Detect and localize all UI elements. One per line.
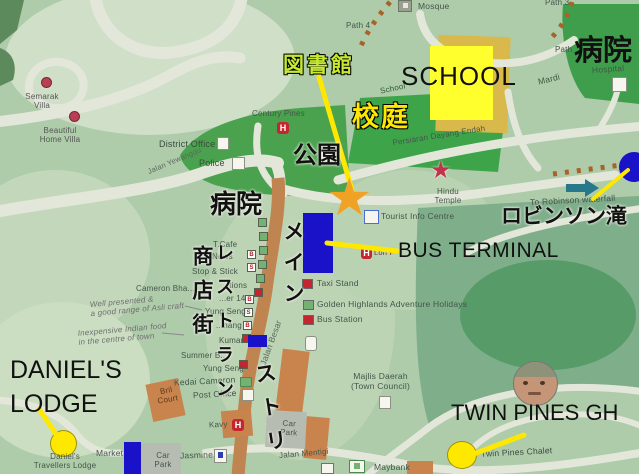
annotation-twin-pines-en: TWIN PINES GH — [451, 400, 618, 426]
annotation-restaurant-jp: レストラン — [211, 243, 237, 413]
annotation-schoolyard-jp: 校庭 — [352, 95, 410, 134]
annotation-school-en: SCHOOL — [401, 61, 517, 92]
annotation-library-jp: 図書館 — [283, 49, 355, 79]
annotation-bus-terminal-en: BUS TERMINAL — [398, 239, 559, 263]
annotation-hospital-ne-jp: 病院 — [574, 27, 632, 69]
tanah-rata-annotated-map: B S B S B H H H ★ ★ Semarak Villa Beauti… — [0, 0, 639, 474]
annotation-robinson-falls-jp: ロビンソン滝 — [501, 200, 627, 230]
annotation-daniels-line1: DANIEL'S — [10, 356, 122, 385]
annotation-park-jp: 公園 — [293, 135, 341, 170]
annotation-hospital-town-jp: 病院 — [210, 184, 262, 221]
annotation-main-street-jp-1: メイン — [277, 220, 307, 313]
to-waterfall-arrow-icon — [566, 179, 599, 197]
annotation-daniels-line2: LODGE — [10, 390, 98, 419]
town-centre-star-marker-icon: ★ — [326, 172, 373, 224]
